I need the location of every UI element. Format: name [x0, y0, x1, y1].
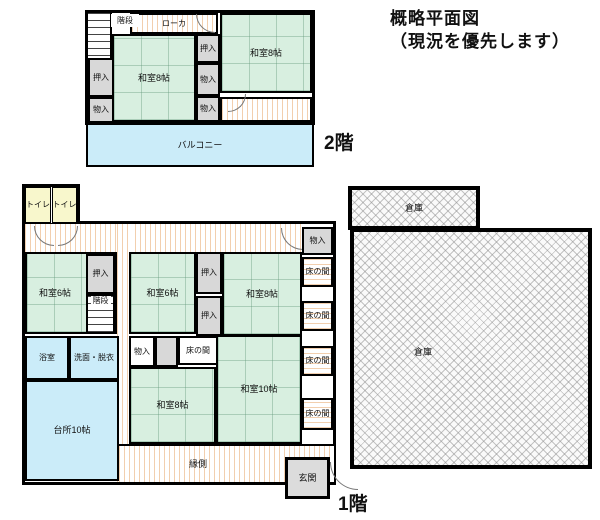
floor1-washroom-label: 洗面・脱衣 [74, 354, 114, 362]
floor1-closet-unlabeled [155, 336, 178, 367]
floor1-tokonoma-mid-label: 床の間 [186, 347, 210, 355]
floor1-toilet-right-label: トイレ [53, 201, 77, 209]
floor1-tokonoma-3: 床の間 [302, 346, 333, 376]
floor2-monoire-mid2: 物入 [196, 96, 220, 122]
floor1-label: 1階 [338, 489, 368, 516]
floor1-washitsu8-upper: 和室8帖 [222, 252, 302, 336]
floor2-washitsu-left: 和室8帖 [112, 34, 196, 122]
floor1-washitsu8-lower-label: 和室8帖 [156, 401, 188, 410]
floor1-washitsu6-left-label: 和室6帖 [39, 289, 71, 298]
warehouse-main-label: 倉庫 [414, 348, 432, 357]
floor1-stairs: 階段 [86, 294, 115, 334]
floor1-tokonoma-mid: 床の間 [178, 336, 218, 365]
floor1-washitsu6-mid-label: 和室6帖 [146, 289, 178, 298]
floor1-oshiire-mid-lower-label: 押入 [201, 312, 217, 320]
floor2-washitsu-right: 和室8帖 [220, 13, 312, 93]
floor2-label: 2階 [324, 128, 354, 155]
floor1-engawa-label: 縁側 [189, 460, 207, 469]
floor2-stairs [88, 13, 112, 59]
floor1-washitsu6-mid: 和室6帖 [129, 252, 196, 334]
floor1-tokonoma-4-label: 床の間 [306, 410, 330, 418]
floor1-kitchen: 台所10帖 [25, 380, 119, 481]
floor2-balcony: バルコニー [86, 123, 314, 167]
floor1-tokonoma-4: 床の間 [302, 398, 333, 430]
floor1-oshiire-left-label: 押入 [93, 270, 109, 278]
floor1-oshiire-left: 押入 [86, 254, 115, 294]
floor2-washitsu-left-label: 和室8帖 [138, 74, 170, 83]
warehouse-upper-label: 倉庫 [405, 204, 423, 213]
warehouse-main: 倉庫 [350, 228, 592, 469]
floor2-oshiire-left-label: 押入 [93, 74, 109, 82]
floor1-toilet-left-label: トイレ [26, 201, 50, 209]
floor2-monoire-mid1-label: 物入 [200, 76, 216, 84]
floor1-monoire-top-label: 物入 [310, 237, 326, 245]
floor1-monoire-mid: 物入 [129, 336, 155, 367]
floor2-monoire-mid2-label: 物入 [200, 105, 216, 113]
floor1-washitsu10-label: 和室10帖 [240, 385, 277, 394]
floor1-kitchen-label: 台所10帖 [53, 426, 90, 435]
floor2-monoire-left-label: 物入 [93, 106, 109, 114]
floor2-washitsu-right-label: 和室8帖 [250, 49, 282, 58]
floor2-balcony-label: バルコニー [178, 141, 223, 150]
floor1-oshiire-mid-upper-label: 押入 [201, 269, 217, 277]
title-line1: 概略平面図 [390, 8, 570, 31]
floor1-tokonoma-2: 床の間 [302, 301, 333, 331]
floor1-genkan: 玄関 [285, 457, 330, 499]
floor1-washitsu8-lower: 和室8帖 [129, 367, 216, 444]
floor2-monoire-left: 物入 [88, 97, 114, 123]
floor1-oshiire-mid-upper: 押入 [196, 252, 222, 294]
floor1-genkan-label: 玄関 [298, 474, 316, 483]
floor2-stairs-label: 階段 [117, 17, 133, 25]
floor1-tokonoma-3-label: 床の間 [306, 357, 330, 365]
warehouse-upper: 倉庫 [348, 186, 480, 230]
floor1-bathroom: 浴室 [25, 336, 69, 380]
floor1-tokonoma-2-label: 床の間 [306, 312, 330, 320]
floor1-tokonoma-1: 床の間 [302, 257, 333, 287]
title-line2: （現況を優先します） [390, 31, 570, 54]
floor1-washroom: 洗面・脱衣 [69, 336, 119, 380]
floor1-toilet-left: トイレ [25, 187, 51, 223]
floor1-washitsu10: 和室10帖 [216, 335, 302, 444]
floor1-monoire-mid-label: 物入 [134, 348, 150, 356]
floor1-tokonoma-1-label: 床の間 [306, 268, 330, 276]
floor2-oshiire-left: 押入 [88, 58, 114, 97]
floor-plan-canvas: 概略平面図 （現況を優先します） ローカ 階段 和室8帖 和室8帖 押入 物入 … [0, 0, 600, 520]
floor1-washitsu8-upper-label: 和室8帖 [246, 290, 278, 299]
floor2-oshiire-mid-label: 押入 [200, 45, 216, 53]
floor1-stairs-label: 階段 [91, 296, 111, 306]
floor2-stairs-labelbox: 階段 [111, 14, 139, 27]
floor1-monoire-top: 物入 [302, 227, 333, 255]
floor1-toilet-right: トイレ [52, 187, 77, 223]
floor1-bathroom-label: 浴室 [39, 354, 55, 362]
floor1-oshiire-mid-lower: 押入 [196, 296, 222, 336]
page-title: 概略平面図 （現況を優先します） [390, 8, 570, 54]
floor2-corridor-label: ローカ [162, 20, 186, 28]
floor2-monoire-mid1: 物入 [196, 63, 220, 96]
floor2-oshiire-mid: 押入 [196, 34, 220, 63]
